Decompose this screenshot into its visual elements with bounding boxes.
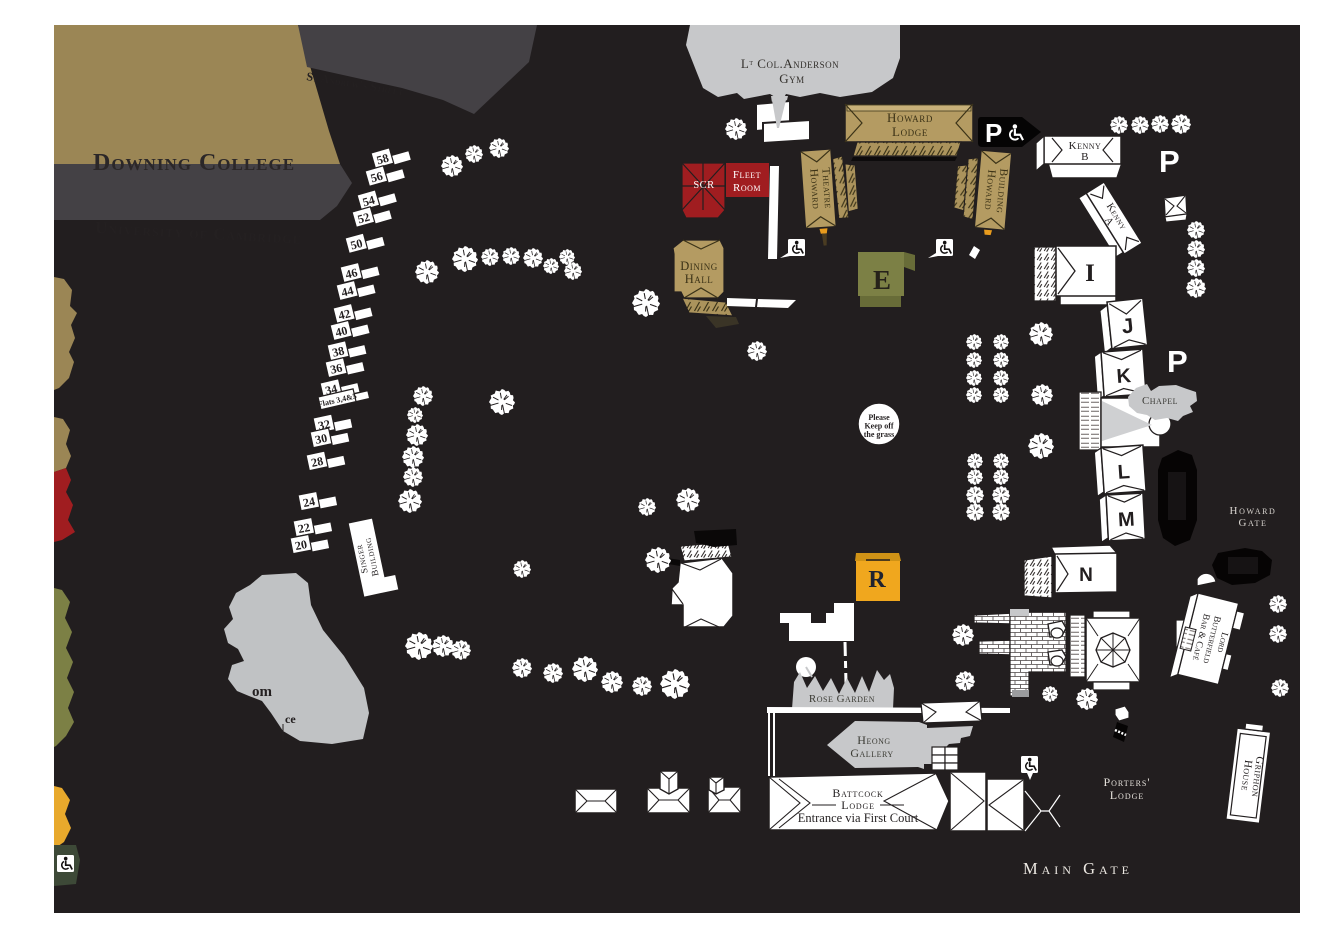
svg-text:Fleet: Fleet: [733, 169, 761, 181]
svg-text:Howard: Howard: [1230, 505, 1277, 517]
svg-text:Entrance via First Court: Entrance via First Court: [798, 811, 919, 825]
svg-text:Gate: Gate: [1238, 517, 1267, 529]
svg-text:Downing College: Downing College: [93, 150, 295, 176]
svg-text:N: N: [1079, 565, 1093, 586]
svg-text:Lodge: Lodge: [1110, 788, 1145, 802]
svg-text:Hall: Hall: [685, 272, 714, 286]
svg-text:Room: Room: [733, 182, 761, 194]
svg-text:I: I: [1085, 260, 1095, 287]
svg-text:K: K: [1116, 365, 1132, 388]
svg-text:M: M: [1117, 509, 1135, 532]
svg-text:P: P: [985, 118, 1002, 148]
svg-text:Heong: Heong: [857, 733, 890, 747]
svg-text:Rose Garden: Rose Garden: [809, 693, 875, 705]
svg-text:Gallery: Gallery: [850, 746, 893, 760]
svg-text:om: om: [252, 684, 273, 700]
svg-text:Porters': Porters': [1103, 775, 1150, 789]
svg-text:Main Gate: Main Gate: [1023, 859, 1133, 878]
svg-text:P: P: [1159, 144, 1180, 179]
svg-text:P: P: [1167, 344, 1188, 379]
svg-text:Gym: Gym: [779, 71, 804, 86]
svg-text:Lodge: Lodge: [841, 798, 875, 812]
svg-text:Chapel: Chapel: [1142, 395, 1178, 407]
svg-text:B: B: [1081, 151, 1089, 163]
svg-text:Lodge: Lodge: [892, 124, 928, 139]
svg-text:E: E: [873, 265, 891, 295]
svg-text:R: R: [868, 567, 886, 593]
svg-text:Lt Col.Anderson: Lt Col.Anderson: [741, 56, 839, 71]
svg-text:ce: ce: [285, 712, 296, 726]
svg-text:the grass: the grass: [864, 430, 894, 439]
svg-text:J: J: [1121, 314, 1135, 338]
svg-text:Howard: Howard: [887, 110, 933, 125]
svg-text:Dining: Dining: [680, 259, 718, 273]
svg-text:SCR: SCR: [693, 180, 714, 191]
svg-text:L: L: [1117, 461, 1131, 484]
